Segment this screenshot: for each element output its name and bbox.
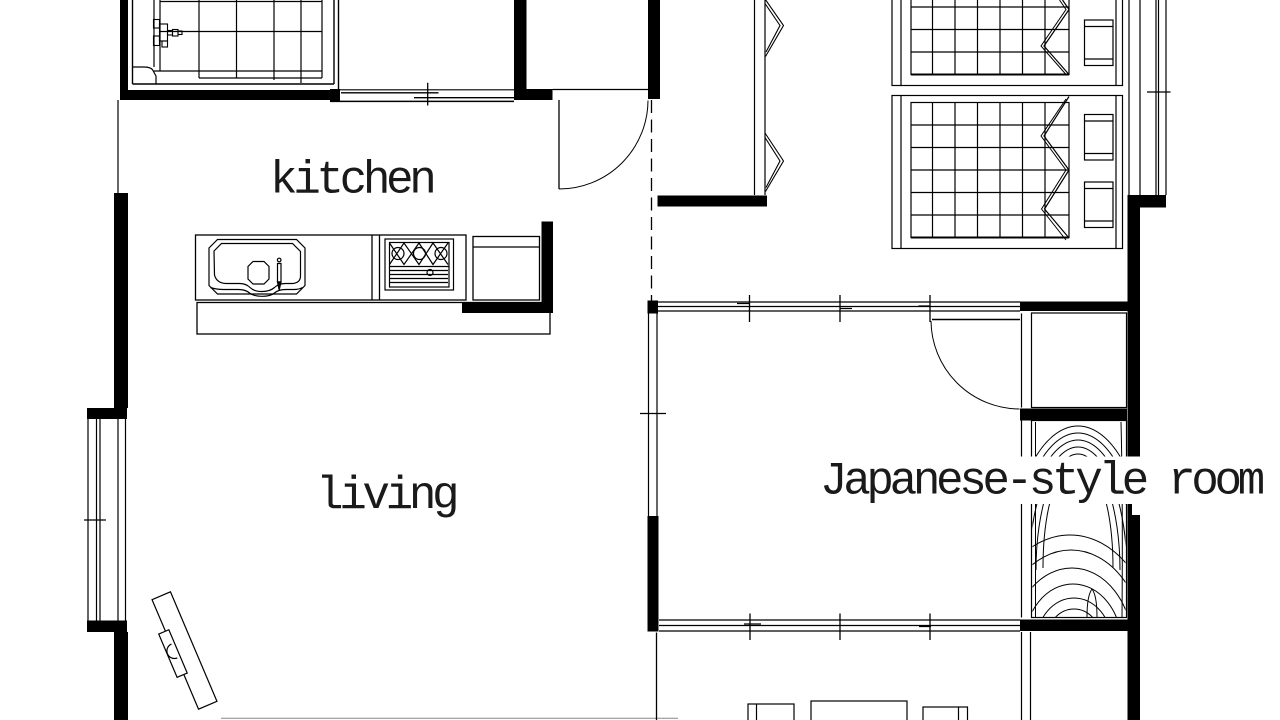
svg-text:kitchen: kitchen xyxy=(270,155,433,207)
svg-text:Japanese-style room: Japanese-style room xyxy=(820,456,1264,508)
svg-text:living: living xyxy=(316,470,456,522)
